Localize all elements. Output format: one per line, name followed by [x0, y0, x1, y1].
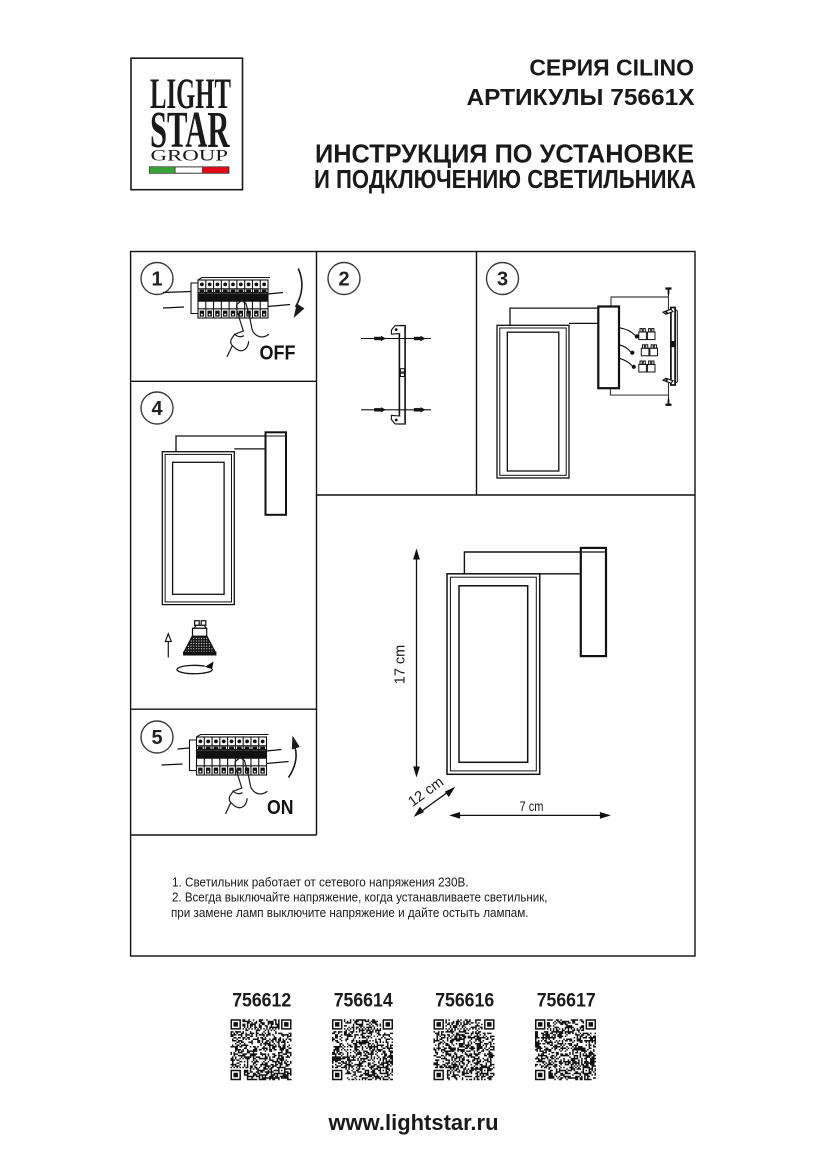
svg-text:17 cm: 17 cm: [393, 645, 409, 685]
svg-text:756612: 756612: [232, 989, 291, 1011]
svg-text:5: 5: [151, 727, 162, 749]
svg-text:1. Светильник работает от сете: 1. Светильник работает от сетевого напря…: [172, 874, 469, 889]
svg-text:12 cm: 12 cm: [405, 774, 446, 810]
svg-text:при замене ламп выключите напр: при замене ламп выключите напряжение и д…: [171, 905, 529, 920]
svg-text:И ПОДКЛЮЧЕНИЮ СВЕТИЛЬНИКА: И ПОДКЛЮЧЕНИЮ СВЕТИЛЬНИКА: [314, 164, 696, 194]
svg-text:4: 4: [151, 398, 163, 420]
svg-text:GROUP: GROUP: [151, 147, 229, 164]
svg-text:756617: 756617: [537, 989, 596, 1011]
svg-text:2: 2: [338, 269, 349, 291]
svg-text:3: 3: [497, 269, 508, 291]
svg-text:СЕРИЯ CILINO: СЕРИЯ CILINO: [529, 55, 694, 81]
svg-text:АРТИКУЛЫ 75661X: АРТИКУЛЫ 75661X: [467, 84, 696, 110]
svg-text:ON: ON: [267, 796, 294, 819]
svg-text:www.lightstar.ru: www.lightstar.ru: [328, 1110, 499, 1135]
svg-text:2. Всегда выключайте напряжени: 2. Всегда выключайте напряжение, когда у…: [172, 890, 548, 905]
svg-text:756614: 756614: [334, 989, 393, 1011]
svg-text:756616: 756616: [435, 989, 494, 1011]
svg-text:1: 1: [151, 269, 162, 291]
svg-text:OFF: OFF: [260, 341, 296, 364]
svg-text:7 cm: 7 cm: [520, 798, 544, 814]
